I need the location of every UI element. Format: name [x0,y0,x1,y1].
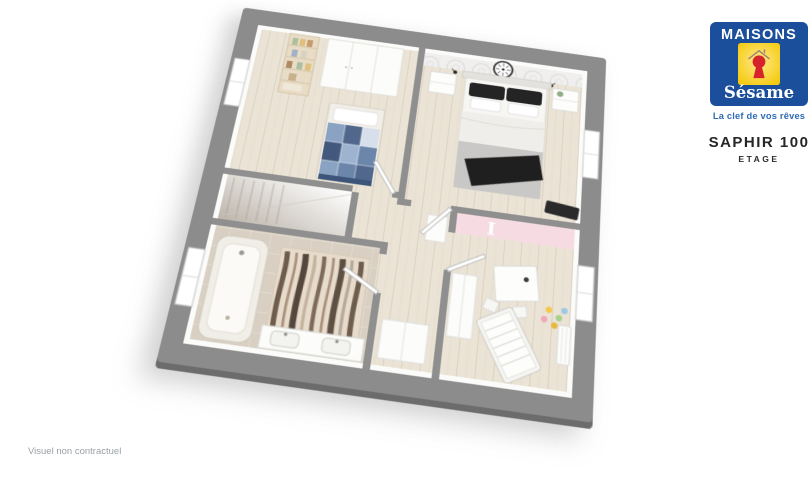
floorplan-canvas: I [156,8,606,423]
brand-name: MAISONS [721,28,797,43]
wardrobe [320,39,404,97]
wall [379,248,387,255]
disclaimer-text: Visuel non contractuel [28,446,121,457]
plan-floor-label: ETAGE [699,154,811,164]
brand-logo: MAISONS Sésame [710,22,808,106]
radiator [556,325,571,366]
brand-tagline: La clef de vos rêves [699,111,811,121]
keyhole-badge [738,43,780,85]
plan-title-block: SAPHIR 100 ETAGE [699,135,811,164]
brand-block: MAISONS Sésame La clef de vos rêves [699,22,811,121]
kids-desk [494,266,540,301]
brand-script-name: Sésame [724,85,794,102]
wall-letter-decor: I [486,219,497,240]
nightstand [552,88,579,112]
plan-model-name: SAPHIR 100 [699,135,811,152]
floorplan-rotation-wrapper: I [176,0,628,422]
page: I [0,0,811,480]
nightstand [428,71,457,95]
bed-double [449,71,551,200]
floorplan-perspective-wrapper: I [156,8,606,423]
